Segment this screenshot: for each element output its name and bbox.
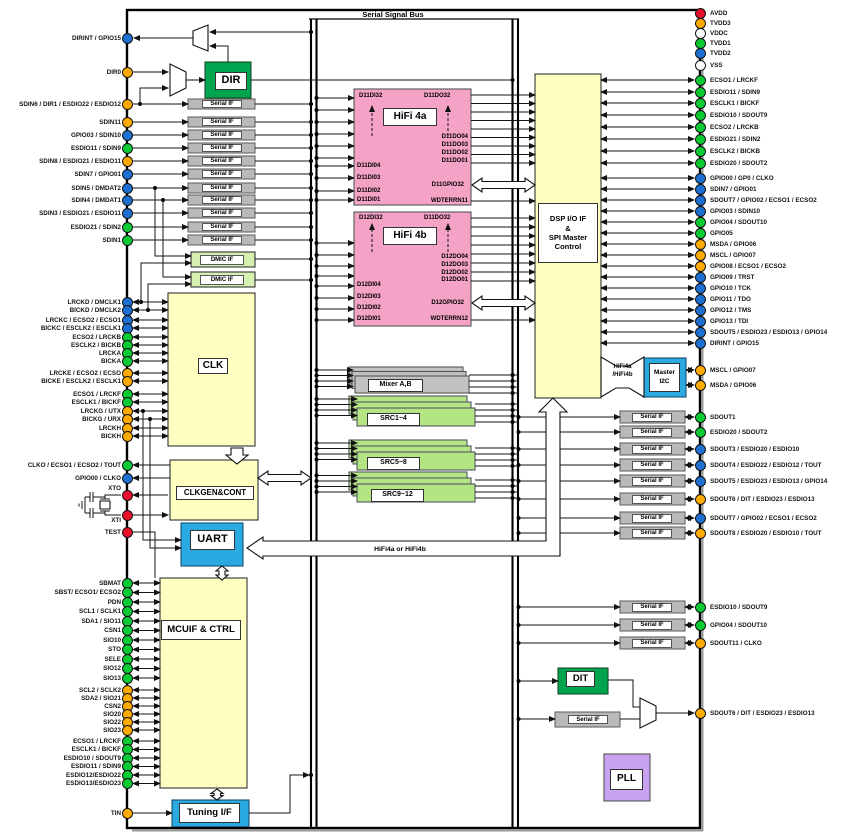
pin-right-eport-5 <box>695 134 706 145</box>
pin-right-power-5 <box>695 60 706 71</box>
dmic-if-label-2: DMIC IF <box>200 275 244 285</box>
pin-left-clk-7 <box>122 356 133 367</box>
pin-left-sdin-7 <box>122 195 133 206</box>
hifi4a-port-di-3: D11DI01 <box>357 196 380 204</box>
mixer-block-label: Mixer A,B <box>368 379 423 392</box>
pin-label-right-gpio-15: DIRINT / GPIO15 <box>710 339 759 348</box>
pin-label-left-clkgen-0: CLKO / ECSO1 / ECSO2 / TOUT <box>28 461 121 470</box>
pin-label-left-mcu-3: SCL1 / SCLK1 <box>79 607 121 616</box>
pin-label-right-sdout-5: SDOUT6 / DIT / ESDIO23 / ESDIO13 <box>710 495 815 504</box>
hifi4a-port-d11do32: D11DO32 <box>424 92 450 100</box>
pll-block-label: PLL <box>610 769 643 790</box>
pin-label-left-clk-3: BICKC / ESCLK2 / ESCLK1 <box>41 324 121 333</box>
hifi4b-port-di-2: D12DI02 <box>357 304 381 312</box>
serial-if-label-right-7: Serial IF <box>632 529 672 538</box>
serial-if-label-right-9: Serial IF <box>632 621 672 630</box>
pin-label-left-mcu-0: SBMAT <box>99 579 121 588</box>
serial-signal-bus-label: Serial Signal Bus <box>320 10 466 19</box>
pin-label-left-dir-1: DIR0 <box>107 68 121 77</box>
pin-label-left-esd-5: ESDIO13/ESDIO23 <box>66 779 121 788</box>
pin-right-power-3 <box>695 38 706 49</box>
pin-label-left-sdin-2: GPIO03 / SDIN10 <box>71 131 121 140</box>
serial-if-label-right-0: Serial IF <box>632 413 672 422</box>
serial-if-label-left-8: Serial IF <box>202 209 242 217</box>
pin-label-left-mcu-5: CSN1 <box>104 626 121 635</box>
uart-block-label: UART <box>190 530 235 550</box>
pin-label-left-xtal-1: XTI <box>111 516 121 525</box>
pin-right-sdout-5 <box>695 494 706 505</box>
pin-label-right-gpio-9: GPIO09 / TRST <box>710 273 754 282</box>
pin-right-gpio-11 <box>695 294 706 305</box>
pin-label-right-gpio-4: GPIO04 / SDOUT10 <box>710 218 767 227</box>
hifi4a-port-do-0: D11DO04 <box>420 133 468 141</box>
pin-left-dir-0 <box>122 33 133 44</box>
mcuif-block-label: MCUIF & CTRL <box>161 620 241 640</box>
pin-label-right-sdout2-2: SDOUT11 / CLKO <box>710 639 762 648</box>
hifi4b-block-label: HiFi 4b <box>383 227 437 245</box>
pin-left-xtal-2 <box>122 527 133 538</box>
pin-right-eport-3 <box>695 110 706 121</box>
pin-label-right-power-1: TVDD3 <box>710 19 731 28</box>
pin-label-left-xtal-0: XTO <box>108 484 121 493</box>
pin-right-sdout2-1 <box>695 620 706 631</box>
pin-right-gpio-13 <box>695 316 706 327</box>
hifi4b-port-wdterrn: WDTERRN12 <box>408 315 468 323</box>
pin-left-mcu-10 <box>122 673 133 684</box>
pin-right-sdout-1 <box>695 427 706 438</box>
pin-right-gpio-12 <box>695 305 706 316</box>
pin-right-sdout2-0 <box>695 602 706 613</box>
pin-label-right-gpio-6: MSDA / GPIO06 <box>710 240 756 249</box>
pin-label-right-gpio-0: GPIO00 / GP0 / CLKO <box>710 174 774 183</box>
pin-right-power-1 <box>695 18 706 29</box>
pin-left-clk-15 <box>122 431 133 442</box>
pin-label-left-sdin-1: SDIN11 <box>99 118 121 127</box>
pin-label-right-sdout2-0: ESDIO10 / SDOUT9 <box>710 603 767 612</box>
pin-label-left-sdin-6: SDIN5 / DMDAT2 <box>71 184 121 193</box>
pin-label-right-eport-5: ESDIO21 / SDIN2 <box>710 135 760 144</box>
pin-right-eport-6 <box>695 146 706 157</box>
pin-right-sdout-3 <box>695 460 706 471</box>
pin-right-sdout-6 <box>695 513 706 524</box>
pin-label-right-sdout-6: SDOUT7 / GPIO02 / ECSO1 / ECSO2 <box>710 514 817 523</box>
pin-label-right-power-0: AVDD <box>710 9 727 18</box>
pin-right-power-0 <box>695 8 706 19</box>
pin-label-right-gpio-11: GPIO11 / TDO <box>710 295 751 304</box>
dit-block-label: DIT <box>566 671 595 687</box>
pin-label-right-eport-1: ESDIO11 / SDIN9 <box>710 88 760 97</box>
pin-left-xtal-1 <box>122 510 133 521</box>
pin-label-right-eport-4: ECSO2 / LRCKB <box>710 123 759 132</box>
pin-label-right-sdout-2: SDOUT3 / ESDIO20 / ESDIO10 <box>710 445 799 454</box>
pin-left-sdin-3 <box>122 143 133 154</box>
hifi4b-port-d11do32: D11DO32 <box>424 214 450 222</box>
serial-if-label-left-3: Serial IF <box>202 144 242 152</box>
pin-right-gpio-14 <box>695 327 706 338</box>
pin-label-right-gpio-5: GPIO05 <box>710 229 733 238</box>
pin-right-eport-7 <box>695 158 706 169</box>
pin-label-left-sdin-4: SDIN8 / ESDIO21 / ESDIO11 <box>39 157 121 166</box>
hifi4b-port-do-0: D12DO04 <box>420 253 468 261</box>
hifi4a-port-do-2: D11DO02 <box>420 149 468 157</box>
pin-right-gpio-6 <box>695 239 706 250</box>
pin-label-right-eport-7: ESDIO20 / SDOUT2 <box>710 159 767 168</box>
pin-label-right-gpio-14: SDOUT5 / ESDIO23 / ESDIO13 / GPIO14 <box>710 328 827 337</box>
pin-left-sdin-1 <box>122 117 133 128</box>
hifi4b-port-di-0: D12DI04 <box>357 281 381 289</box>
serial-if-label-left-5: Serial IF <box>202 170 242 178</box>
serial-if-label-right-6: Serial IF <box>632 514 672 523</box>
pin-label-right-gpio-3: GPIO03 / SDIN10 <box>710 207 760 216</box>
pin-label-left-clk-1: BICKD / DMCLK2 <box>70 306 121 315</box>
serial-if-label-left-0: Serial IF <box>202 100 242 108</box>
hifi4a-port-d11di32: D11DI32 <box>359 92 382 100</box>
pin-label-right-gpio-7: MSCL / GPIO07 <box>710 251 756 260</box>
pin-right-gpio-3 <box>695 206 706 217</box>
pin-label-right-gpio-10: GPIO10 / TCK <box>710 284 751 293</box>
pin-label-left-clk-7: BICKA <box>101 357 121 366</box>
pin-label-left-sdin-7: SDIN4 / DMDAT1 <box>71 196 121 205</box>
pin-right-gpio-4 <box>695 217 706 228</box>
pin-label-left-dir-0: DIRINT / GPIO15 <box>72 34 121 43</box>
pin-right-sdout2-2 <box>695 638 706 649</box>
pin-label-right-eport-0: ECSO1 / LRCKF <box>710 76 758 85</box>
pin-label-right-gpio-12: GPIO12 / TMS <box>710 306 751 315</box>
pin-label-left-mcu-9: SIO12 <box>103 664 121 673</box>
hifi4a-block-label: HiFi 4a <box>383 108 437 126</box>
pin-label-left-mcu2-5: SIO23 <box>103 726 121 735</box>
pin-right-gpio-15 <box>695 338 706 349</box>
src5-8-block-label: SRC5~8 <box>367 457 420 470</box>
pin-right-gpio-5 <box>695 228 706 239</box>
hifi4a-port-di-1: D11DI03 <box>357 174 380 182</box>
pin-left-clk-9 <box>122 376 133 387</box>
pin-label-left-sdin-9: ESDIO21 / SDIN2 <box>71 223 121 232</box>
hifi4b-port-di-1: D12DI03 <box>357 293 381 301</box>
pin-left-sdin-0 <box>122 99 133 110</box>
pin-label-left-sdin-10: SDIN1 <box>102 236 121 245</box>
dsp-io-block-label: DSP I/O IF & SPI Master Control <box>538 203 598 263</box>
serial-if-label-dit: Serial IF <box>568 715 608 724</box>
pin-label-left-mcu-4: SDA1 / SIO11 <box>81 617 121 626</box>
pin-left-mcu2-5 <box>122 725 133 736</box>
hifi-bus-arrow-label: HiFi4a or HiFi4b <box>330 545 470 554</box>
hifi4a-port-do-1: D11DO03 <box>420 141 468 149</box>
pin-label-right-eport-3: ESDIO10 / SDOUT9 <box>710 111 767 120</box>
pin-label-right-dit-0: SDOUT6 / DIT / ESDIO23 / ESDIO13 <box>710 709 815 718</box>
pin-right-gpio-0 <box>695 173 706 184</box>
pin-label-left-clkgen-1: GPIO00 / CLKO <box>75 474 121 483</box>
pin-label-right-eport-2: ESCLK1 / BICKF <box>710 99 759 108</box>
src9-12-block-label: SRC9~12 <box>371 489 424 502</box>
pin-label-left-clk-13: BICKG / URX <box>82 415 121 424</box>
pin-label-right-gpio-8: GPIO08 / ECSO1 / ECSO2 <box>710 262 786 271</box>
pin-left-esd-5 <box>122 778 133 789</box>
serial-if-label-right-10: Serial IF <box>632 639 672 648</box>
pin-label-left-clk-15: BICKH <box>101 432 121 441</box>
pin-label-right-power-5: VSS <box>710 61 723 70</box>
pin-left-tin-0 <box>122 808 133 819</box>
pin-left-sdin-4 <box>122 156 133 167</box>
pin-right-i2c-0 <box>695 365 706 376</box>
pin-right-gpio-2 <box>695 195 706 206</box>
pin-left-xtal-0 <box>122 490 133 501</box>
serial-if-label-right-1: Serial IF <box>632 428 672 437</box>
pin-label-right-sdout-4: SDOUT5 / ESDIO23 / ESDIO13 / GPIO14 <box>710 477 827 486</box>
pin-label-right-power-3: TVDD1 <box>710 39 731 48</box>
serial-if-label-right-5: Serial IF <box>632 495 672 504</box>
pin-label-right-sdout-1: ESDIO20 / SDOUT2 <box>710 428 767 437</box>
hifi-i2c-bridge-label: HiFi4a /HiFi4b <box>601 364 644 390</box>
pin-right-eport-0 <box>695 75 706 86</box>
pin-label-right-sdout-3: SDOUT4 / ESDIO22 / ESDIO12 / TOUT <box>710 461 822 470</box>
serial-if-label-left-7: Serial IF <box>202 196 242 204</box>
pin-right-eport-1 <box>695 87 706 98</box>
hifi4a-port-gpio32: D11GPIO32 <box>408 181 464 189</box>
pin-left-clkgen-0 <box>122 460 133 471</box>
pin-right-sdout-2 <box>695 444 706 455</box>
serial-if-label-right-3: Serial IF <box>632 461 672 470</box>
hifi4b-port-di-3: D12DI01 <box>357 315 381 323</box>
pin-left-sdin-9 <box>122 222 133 233</box>
dsp-block-diagram: DIRCLKCLKGEN&CONTUARTMCUIF & CTRLTuning … <box>0 0 850 836</box>
pin-label-right-sdout-7: SDOUT8 / ESDIO20 / ESDIO10 / TOUT <box>710 529 822 538</box>
pin-label-left-mcu-6: SIO10 <box>103 636 121 645</box>
pin-right-sdout-0 <box>695 412 706 423</box>
serial-if-label-left-1: Serial IF <box>202 118 242 126</box>
pin-label-left-xtal-2: TEST <box>105 528 121 537</box>
pin-right-gpio-7 <box>695 250 706 261</box>
hifi4b-port-do-3: D12DO01 <box>420 276 468 284</box>
pin-right-gpio-1 <box>695 184 706 195</box>
hifi4b-port-gpio32: D12GPIO32 <box>408 299 464 307</box>
pin-left-sdin-6 <box>122 183 133 194</box>
pin-label-left-clk-11: ESCLK1 / BICKF <box>72 398 121 407</box>
hifi4b-port-d12di32: D12DI32 <box>359 214 383 222</box>
pin-left-sdin-8 <box>122 208 133 219</box>
pin-label-right-power-4: TVDD2 <box>710 49 731 58</box>
hifi4a-port-do-3: D11DO01 <box>420 157 468 165</box>
pin-label-right-sdout-0: SDOUT1 <box>710 413 736 422</box>
pin-label-right-gpio-13: GPIO13 / TDI <box>710 317 748 326</box>
hifi4a-port-di-2: D11DI02 <box>357 187 380 195</box>
serial-if-label-left-9: Serial IF <box>202 223 242 231</box>
dir-block-label: DIR <box>215 72 247 90</box>
clk-block-label: CLK <box>198 358 228 374</box>
hifi4a-port-di-0: D11DI04 <box>357 162 380 170</box>
pin-label-left-clk-9: BICKE / ESCLK2 / ESCLK1 <box>41 377 121 386</box>
pin-left-clkgen-1 <box>122 473 133 484</box>
serial-if-label-right-8: Serial IF <box>632 603 672 612</box>
pin-label-left-sdin-3: ESDIO11 / SDIN9 <box>71 144 121 153</box>
pin-label-left-sdin-0: SDIN6 / DIR1 / ESDIO22 / ESDIO12 <box>19 100 121 109</box>
master-i2c-block-label: Master I2C <box>649 363 680 392</box>
pin-label-left-mcu-1: SBST/ ECSO1/ ECSO2 <box>55 588 122 597</box>
pin-label-left-mcu-10: SIO13 <box>103 674 121 683</box>
pin-right-power-2 <box>695 28 706 39</box>
pin-right-sdout-4 <box>695 476 706 487</box>
pin-right-eport-4 <box>695 122 706 133</box>
pin-label-right-power-2: VDDC <box>710 29 728 38</box>
pin-label-right-gpio-1: SDIN7 / GPIO01 <box>710 185 757 194</box>
pin-left-sdin-5 <box>122 169 133 180</box>
pin-right-dit-0 <box>695 708 706 719</box>
serial-if-label-left-2: Serial IF <box>202 131 242 139</box>
clkgen-block-label: CLKGEN&CONT <box>176 486 254 500</box>
pin-right-sdout-7 <box>695 528 706 539</box>
pin-left-dir-1 <box>122 67 133 78</box>
pin-label-left-sdin-5: SDIN7 / GPIO01 <box>74 170 121 179</box>
dmic-if-label-1: DMIC IF <box>200 255 244 265</box>
pin-label-left-mcu-7: STO <box>108 645 121 654</box>
pin-right-gpio-9 <box>695 272 706 283</box>
pin-label-right-i2c-1: MSDA / GPIO06 <box>710 381 756 390</box>
serial-if-label-left-10: Serial IF <box>202 236 242 244</box>
serial-if-label-right-4: Serial IF <box>632 477 672 486</box>
pin-right-gpio-8 <box>695 261 706 272</box>
serial-if-label-left-6: Serial IF <box>202 184 242 192</box>
pin-left-sdin-10 <box>122 235 133 246</box>
pin-label-left-mcu-8: SELE <box>105 655 121 664</box>
pin-label-right-sdout2-1: GPIO04 / SDOUT10 <box>710 621 767 630</box>
pin-right-gpio-10 <box>695 283 706 294</box>
pin-left-clk-1 <box>122 305 133 316</box>
src1-4-block-label: SRC1~4 <box>367 413 420 426</box>
hifi4a-port-wdterrn: WDTERRN11 <box>408 197 468 205</box>
pin-label-right-eport-6: ESCLK2 / BICKB <box>710 147 760 156</box>
pin-right-eport-2 <box>695 98 706 109</box>
pin-label-left-sdin-8: SDIN3 / ESDIO21 / ESDIO11 <box>39 209 121 218</box>
serial-if-label-left-4: Serial IF <box>202 157 242 165</box>
serial-if-label-right-2: Serial IF <box>632 445 672 454</box>
pin-label-right-gpio-2: SDOUT7 / GPIO02 / ECSO1 / ECSO2 <box>710 196 817 205</box>
pin-left-sdin-2 <box>122 130 133 141</box>
hifi4b-port-do-1: D12DO03 <box>420 261 468 269</box>
pin-right-power-4 <box>695 48 706 59</box>
pin-right-i2c-1 <box>695 380 706 391</box>
pin-label-left-mcu-2: PDN <box>108 598 121 607</box>
tuning-if-block-label: Tuning I/F <box>179 803 240 823</box>
pin-label-right-i2c-0: MSCL / GPIO07 <box>710 366 756 375</box>
pin-label-left-tin-0: TIN <box>111 809 121 818</box>
